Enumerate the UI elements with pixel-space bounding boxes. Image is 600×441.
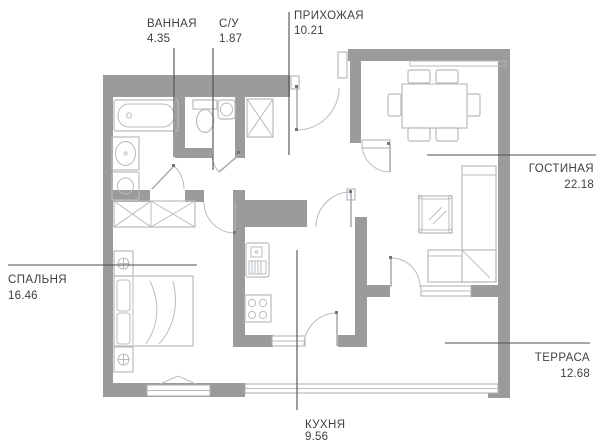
living-terrace-door-pin (389, 256, 392, 259)
dining-chair-top-1 (408, 70, 430, 83)
wall-wc-right (235, 97, 245, 158)
wc-door-pin (237, 151, 240, 154)
dining-chair-top-2 (436, 70, 458, 83)
wall-bath-wc-divider (175, 97, 185, 150)
living-label: ГОСТИНАЯ (529, 163, 594, 175)
stove-burner-3 (248, 311, 255, 318)
wall-kitchen-bottom-left (233, 335, 273, 347)
stove-burner-2 (259, 299, 266, 306)
living-doorway-pin (387, 142, 390, 145)
bedroom-door-pin (233, 231, 236, 234)
bathroom-sink-faucet (124, 152, 127, 155)
bed-pillow-1 (117, 280, 130, 311)
bathroom-area: 4.35 (147, 33, 170, 45)
hallway-label: ПРИХОЖАЯ (294, 10, 364, 22)
kitchen-furniture (245, 243, 271, 322)
hallway-area: 10.21 (294, 25, 324, 37)
bedroom-wardrobe (114, 201, 195, 227)
bedroom-area: 16.46 (8, 290, 38, 302)
bedroom-furniture (114, 201, 195, 372)
wall-vestibule (350, 61, 361, 143)
wall-hall-bedroom (185, 190, 204, 202)
living-area: 22.18 (564, 179, 594, 191)
kitchen-terrace-door-arc (304, 313, 337, 346)
entrance-right-jamb (338, 52, 347, 78)
tv-mirror-glare-1 (429, 207, 442, 220)
bathroom-label: ВАННАЯ (147, 18, 197, 30)
wall-left (103, 75, 113, 397)
entrance-hinge-pin (295, 85, 298, 88)
dining-chair-right (467, 94, 480, 116)
bedroom-window-vent-marks (160, 376, 196, 384)
bathroom-door-arc (174, 166, 184, 189)
bed-pillow-2 (117, 313, 130, 344)
stove-burner-1 (248, 299, 255, 306)
kitchen-sink-faucet (255, 251, 257, 253)
living-console (410, 61, 506, 66)
wall-right (498, 49, 510, 398)
kitchen-terrace-door-pin (335, 311, 338, 314)
tv-mirror (419, 196, 452, 233)
wc-door-leaf (219, 154, 240, 172)
wc-label: С/У (219, 18, 239, 30)
wall-wc-bottom-ledge (175, 148, 212, 158)
wall-top-left (103, 75, 290, 97)
dining-table (402, 84, 467, 128)
kitchen-door-pin (349, 190, 352, 193)
wall-living-bottom-left (367, 285, 390, 297)
terrace-label: ТЕРРАСА (535, 352, 590, 364)
bed-blanket-fold-2 (159, 281, 175, 344)
entrance-leaf-pin (295, 128, 298, 131)
sofa-corner-diagonal (462, 250, 490, 278)
hallway-furniture (247, 99, 273, 137)
wall-living-bottom-right (471, 285, 498, 297)
windows (147, 286, 498, 396)
terrace-area: 12.68 (560, 368, 590, 380)
entrance-door-arc (297, 88, 339, 130)
wall-top-right (348, 49, 510, 61)
bathroom-sink-bowl (116, 142, 136, 166)
kitchen-area: 9.56 (305, 431, 328, 441)
bedroom-door-arc (204, 202, 235, 233)
toilet-bowl (197, 110, 214, 133)
bathroom-door-pin (172, 164, 175, 167)
dining-chair-bottom-2 (436, 128, 458, 141)
wall-duct-block (240, 200, 307, 227)
tv-mirror-corner-4 (448, 229, 452, 233)
bathroom-door-leaf (152, 166, 174, 189)
tv-mirror-glare-2 (433, 211, 446, 224)
wall-kitchen-right (355, 217, 367, 347)
bathtub-drain (127, 113, 132, 118)
floor-plan-canvas: ВАННАЯ 4.35 С/У 1.87 ПРИХОЖАЯ 10.21 ГОСТ… (0, 0, 600, 441)
dining-chair-left (388, 94, 401, 116)
kitchen-label: КУХНЯ (305, 419, 345, 431)
tv-mirror-inner (422, 199, 449, 230)
bathroom-furniture (112, 100, 178, 200)
living-terrace-door-arc (391, 258, 420, 287)
floor-plan: ВАННАЯ 4.35 С/У 1.87 ПРИХОЖАЯ 10.21 ГОСТ… (0, 0, 600, 441)
sofa-back-section (462, 166, 496, 282)
stove-burner-4 (259, 311, 266, 318)
wc-furniture (193, 100, 235, 133)
bedroom-label: СПАЛЬНЯ (8, 274, 67, 286)
kitchen-door-arc (316, 192, 351, 227)
bed-blanket-fold-1 (146, 281, 157, 344)
kitchen-sink-basin (251, 247, 262, 257)
bathtub (114, 100, 178, 131)
wc-sink-bowl (221, 103, 233, 116)
living-doorway-jamb (362, 140, 390, 148)
living-furniture (388, 61, 506, 282)
dining-chair-bottom-1 (408, 128, 430, 141)
wall-kitchen-bottom-right (338, 335, 367, 347)
wc-area: 1.87 (219, 33, 242, 45)
stove (245, 295, 271, 322)
